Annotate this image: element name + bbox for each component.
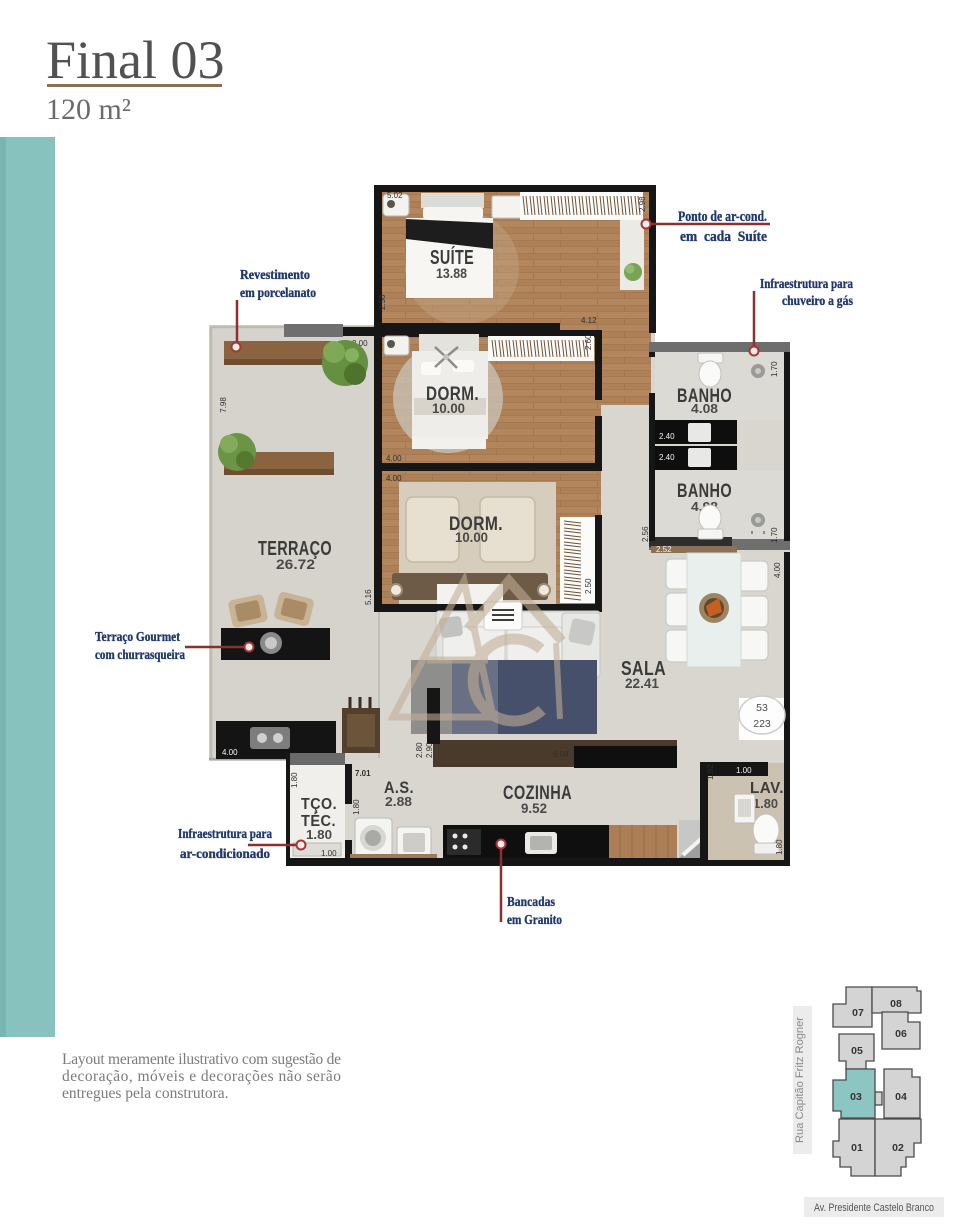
svg-text:2.50: 2.50	[378, 294, 387, 310]
svg-text:4.08: 4.08	[691, 401, 718, 416]
svg-text:53: 53	[756, 702, 768, 714]
svg-text:2.56: 2.56	[641, 526, 650, 542]
svg-text:4.00: 4.00	[222, 748, 238, 757]
svg-text:2.52: 2.52	[656, 545, 672, 554]
svg-text:2.50: 2.50	[584, 578, 593, 594]
svg-text:2.98: 2.98	[638, 196, 647, 212]
svg-text:08: 08	[890, 998, 902, 1010]
svg-text:1.80: 1.80	[775, 839, 784, 855]
svg-text:em porcelanato: em porcelanato	[240, 285, 316, 300]
svg-text:Bancadas: Bancadas	[507, 895, 555, 910]
svg-text:4.00: 4.00	[386, 454, 402, 463]
svg-text:01: 01	[851, 1142, 863, 1154]
svg-text:em Granito: em Granito	[507, 913, 562, 928]
svg-text:2.40: 2.40	[659, 432, 675, 441]
svg-text:2.40: 2.40	[659, 453, 675, 462]
svg-text:4.00: 4.00	[386, 474, 402, 483]
svg-text:07: 07	[852, 1007, 864, 1019]
svg-text:chuveiro a gás: chuveiro a gás	[782, 294, 853, 309]
svg-text:13.88: 13.88	[436, 265, 467, 281]
svg-text:4.12: 4.12	[581, 316, 597, 325]
svg-text:1.70: 1.70	[770, 527, 779, 543]
svg-text:Infraestrutura para: Infraestrutura para	[760, 277, 853, 292]
svg-text:Av. Presidente Castelo Branco: Av. Presidente Castelo Branco	[814, 1202, 934, 1214]
svg-text:1.80: 1.80	[352, 799, 361, 815]
svg-text:7.98: 7.98	[219, 397, 228, 413]
svg-text:02: 02	[892, 1142, 904, 1154]
svg-text:03: 03	[850, 1091, 862, 1103]
svg-text:2.88: 2.88	[385, 794, 412, 809]
svg-text:Infraestrutura para: Infraestrutura para	[178, 826, 272, 841]
svg-text:Final 03: Final 03	[46, 30, 225, 90]
svg-text:Revestimento: Revestimento	[240, 267, 310, 282]
svg-text:2.80: 2.80	[415, 742, 424, 758]
svg-text:1.92: 1.92	[706, 764, 715, 780]
svg-text:4.00: 4.00	[773, 562, 782, 578]
svg-text:26.72: 26.72	[276, 556, 315, 572]
svg-text:Terraço Gourmet: Terraço Gourmet	[95, 629, 180, 644]
svg-text:1.80: 1.80	[290, 772, 299, 788]
svg-text:5.02: 5.02	[387, 191, 403, 200]
svg-text:1.80: 1.80	[306, 827, 332, 842]
svg-text:05: 05	[851, 1045, 863, 1057]
svg-text:06: 06	[895, 1028, 907, 1040]
svg-text:decoração, móveis e decorações: decoração, móveis e decorações não serão	[62, 1068, 341, 1085]
svg-text:223: 223	[753, 718, 771, 730]
svg-text:1.00: 1.00	[736, 766, 752, 775]
svg-text:7.01: 7.01	[355, 769, 371, 778]
svg-text:9.52: 9.52	[521, 801, 547, 816]
svg-text:5.16: 5.16	[364, 589, 373, 605]
svg-text:22.41: 22.41	[625, 676, 659, 691]
svg-text:10.00: 10.00	[455, 530, 488, 545]
svg-text:entregues pela construtora.: entregues pela construtora.	[62, 1085, 229, 1102]
svg-text:2.90: 2.90	[425, 742, 434, 758]
svg-text:Rua Capitão Fritz Rogner: Rua Capitão Fritz Rogner	[794, 1017, 806, 1143]
svg-text:Ponto de ar-cond.: Ponto de ar-cond.	[678, 209, 767, 225]
svg-text:com churrasqueira: com churrasqueira	[95, 647, 185, 662]
svg-text:120 m²: 120 m²	[46, 93, 131, 126]
svg-text:ar-condicionado: ar-condicionado	[180, 846, 270, 861]
svg-text:2.60: 2.60	[584, 334, 593, 350]
svg-text:04: 04	[895, 1091, 907, 1103]
svg-text:1.70: 1.70	[770, 361, 779, 377]
svg-text:6.04: 6.04	[553, 750, 569, 759]
svg-text:1.00: 1.00	[321, 849, 337, 858]
svg-text:TÇO.: TÇO.	[301, 796, 337, 813]
svg-text:Layout meramente ilustrativo c: Layout meramente ilustrativo com sugestã…	[62, 1051, 341, 1068]
svg-text:10.00: 10.00	[432, 401, 465, 416]
svg-text:em cada Suíte: em cada Suíte	[680, 229, 767, 245]
svg-text:1.80: 1.80	[753, 797, 778, 811]
